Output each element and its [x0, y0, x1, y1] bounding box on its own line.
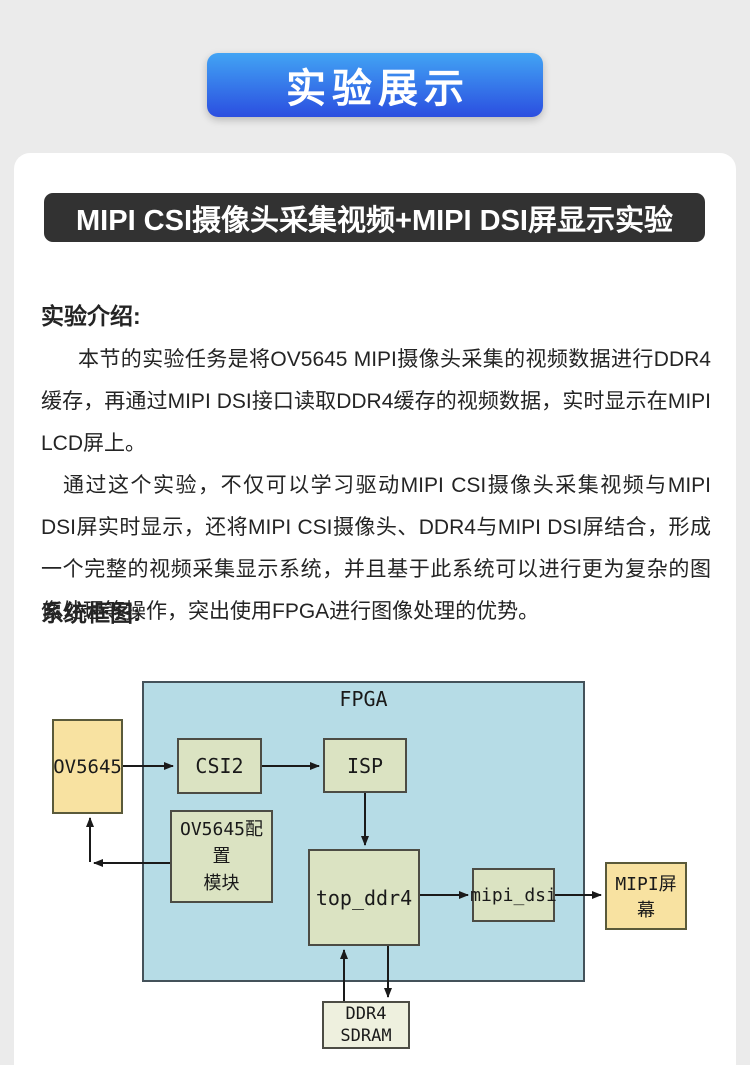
- intro-section: 实验介绍: 本节的实验任务是将OV5645 MIPI摄像头采集的视频数据进行DD…: [41, 297, 711, 633]
- intro-paragraph-1: 本节的实验任务是将OV5645 MIPI摄像头采集的视频数据进行DDR4缓存，再…: [41, 339, 711, 465]
- banner-label: 实验展示: [280, 56, 470, 114]
- diagram-heading: 系统框图:: [41, 594, 141, 628]
- experiment-display-banner: 实验展示: [207, 53, 543, 117]
- intro-paragraph-2: 通过这个实验，不仅可以学习驱动MIPI CSI摄像头采集视频与MIPI DSI屏…: [41, 465, 711, 633]
- system-block-diagram: FPGA OV5645 CSI2 ISP OV5645配置 模块 top_ddr…: [14, 660, 736, 1065]
- diagram-arrows: [14, 660, 736, 1065]
- experiment-title-bar: MIPI CSI摄像头采集视频+MIPI DSI屏显示实验: [44, 193, 705, 242]
- intro-heading: 实验介绍:: [41, 297, 711, 331]
- experiment-title: MIPI CSI摄像头采集视频+MIPI DSI屏显示实验: [76, 197, 673, 239]
- page: { "page": { "background": "#ebebeb", "ca…: [0, 0, 750, 1065]
- content-card: MIPI CSI摄像头采集视频+MIPI DSI屏显示实验 实验介绍: 本节的实…: [14, 153, 736, 1065]
